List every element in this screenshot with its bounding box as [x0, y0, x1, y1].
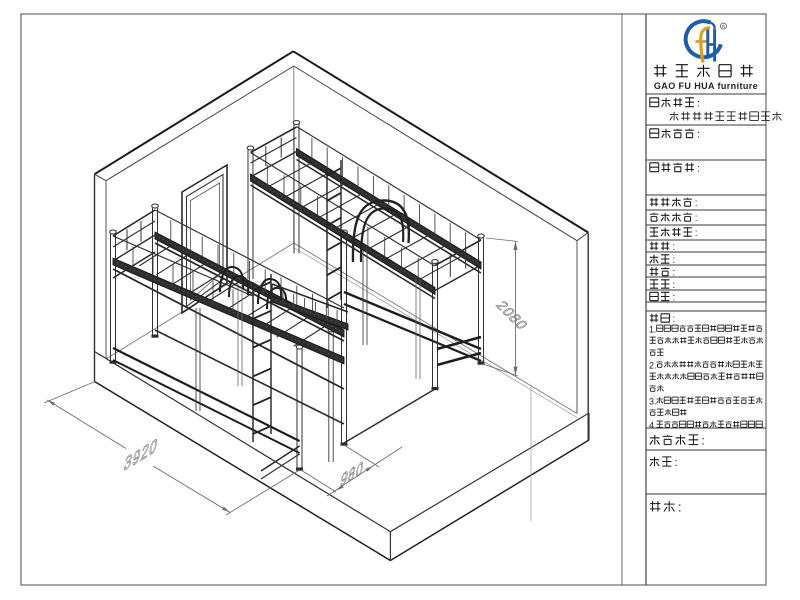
svg-text::: :	[678, 501, 681, 515]
svg-text::: :	[697, 98, 700, 110]
svg-text::: :	[672, 268, 675, 279]
svg-text:1.: 1.	[649, 325, 657, 335]
svg-text::: :	[675, 457, 678, 469]
svg-text::: :	[697, 163, 700, 175]
svg-text:2.: 2.	[649, 361, 657, 371]
svg-text::: :	[672, 314, 675, 325]
svg-text::: :	[697, 129, 700, 141]
svg-text::: :	[672, 242, 675, 253]
svg-text::: :	[672, 280, 675, 291]
svg-text::: :	[695, 228, 698, 239]
svg-text::: :	[672, 293, 675, 304]
svg-text::: :	[695, 198, 698, 209]
svg-text::: :	[695, 213, 698, 224]
svg-text::: :	[702, 436, 705, 448]
svg-text:GAO FU HUA furniture: GAO FU HUA furniture	[654, 81, 758, 91]
svg-text::: :	[672, 255, 675, 266]
svg-text:3.: 3.	[649, 397, 657, 407]
svg-text:4.: 4.	[649, 421, 657, 431]
